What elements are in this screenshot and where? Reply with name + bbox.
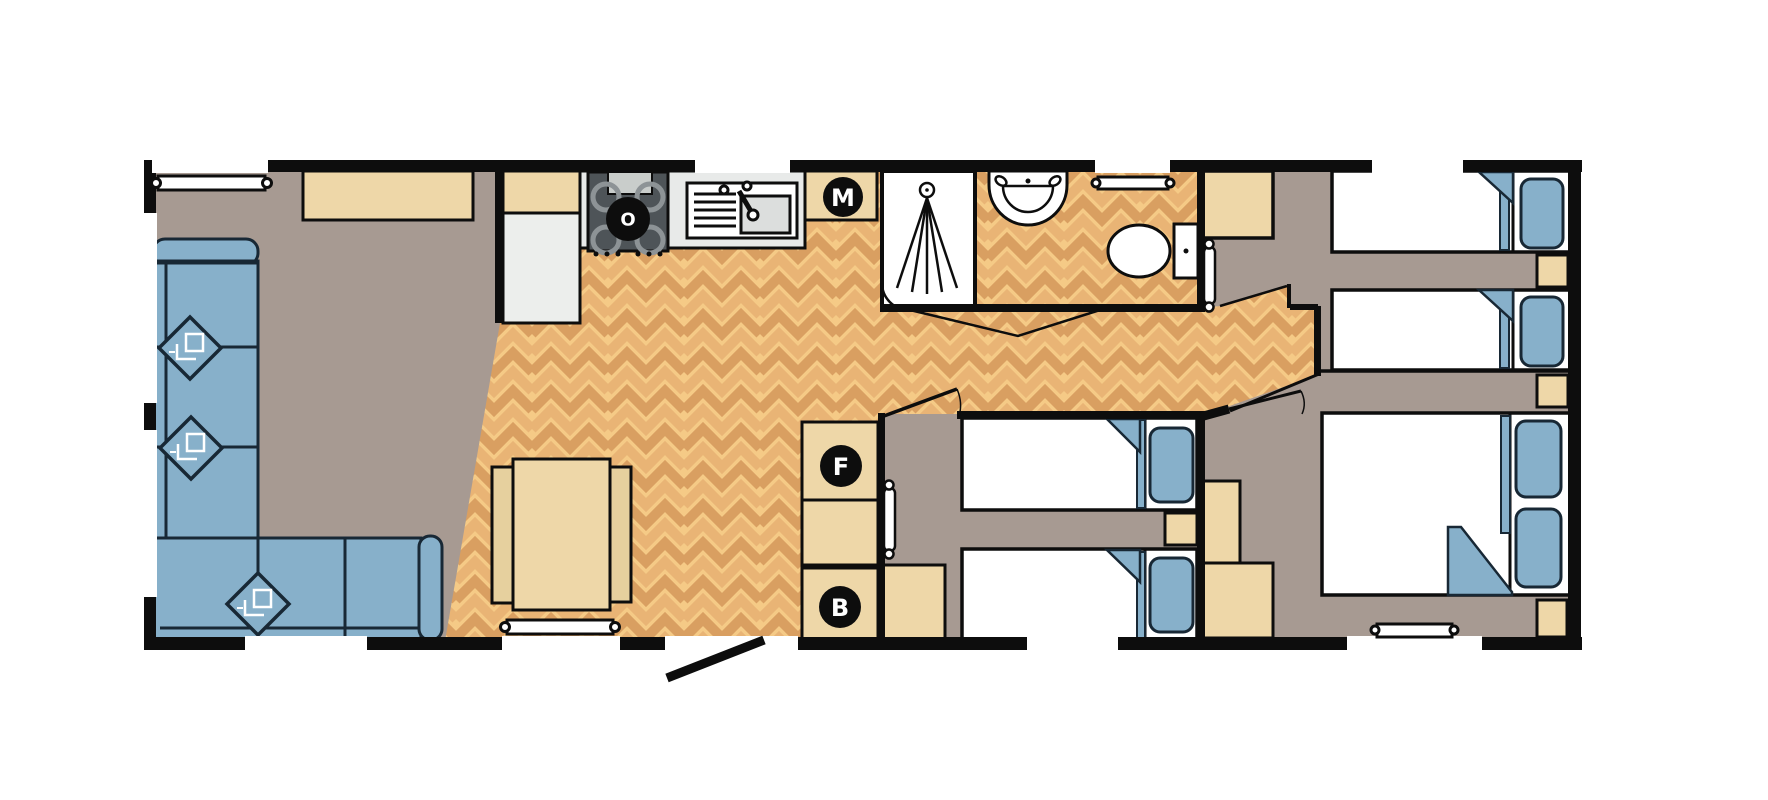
kitchen-unit [802, 500, 878, 565]
wall-living-kitchen [495, 166, 503, 323]
wall-corridor-wedge [1314, 306, 1321, 376]
wall-twin-top [957, 411, 1207, 419]
dining-set [492, 459, 631, 610]
nightstand [1537, 600, 1567, 637]
pillow [1150, 558, 1193, 632]
sofa-vertical-seat [153, 261, 258, 538]
shower-room-door [1204, 240, 1215, 312]
tall-cabinet [503, 213, 580, 323]
pillow [1516, 421, 1561, 497]
dining-chair [610, 467, 631, 602]
floorplan-page: O M F B [0, 0, 1768, 800]
sofa-armrest [419, 536, 442, 640]
microwave-marker-label: M [831, 184, 855, 212]
wall-right [1568, 160, 1581, 650]
single-bed [962, 549, 1197, 640]
caravan-floorplan: O M F B [0, 0, 1768, 800]
pillow [1521, 179, 1563, 248]
sofa-horizontal-seat [153, 538, 421, 640]
single-bed [962, 418, 1197, 510]
double-bed [1322, 413, 1570, 595]
window-living-top [152, 176, 272, 190]
dining-table [513, 459, 610, 610]
single-bed [1332, 171, 1570, 252]
pillow [1516, 509, 1561, 587]
wall-corridor-stub [1290, 304, 1318, 310]
nightstand [1537, 375, 1568, 407]
window-double-bedroom [1371, 624, 1458, 637]
window-dining [501, 620, 620, 634]
fridge-marker-label: F [833, 453, 849, 481]
wall-corridor-stub [1287, 284, 1291, 308]
wardrobe [1202, 481, 1240, 563]
sideboard [303, 171, 473, 220]
oven-marker-label: O [620, 210, 635, 231]
window-shower [1092, 177, 1174, 189]
dining-chair [492, 467, 513, 603]
kitchen-cabinet [503, 171, 580, 213]
wardrobe [1203, 171, 1273, 238]
wall-top [144, 160, 1582, 172]
single-bed [1332, 290, 1570, 370]
bed-runner [1501, 416, 1510, 533]
toilet-bowl [1108, 225, 1170, 277]
pillow [1150, 428, 1193, 502]
kitchen-sink [687, 182, 797, 238]
boiler-marker-label: B [831, 594, 849, 622]
twin-bedroom-door [884, 481, 895, 559]
nightstand [1165, 513, 1197, 545]
wardrobe [1202, 563, 1273, 638]
corner-cabinet [882, 565, 945, 640]
toilet [1108, 224, 1198, 278]
wall-shower-bottom [880, 304, 1205, 312]
pillow [1521, 297, 1563, 366]
nightstand [1537, 255, 1568, 287]
wall-twin-double [1197, 413, 1205, 643]
